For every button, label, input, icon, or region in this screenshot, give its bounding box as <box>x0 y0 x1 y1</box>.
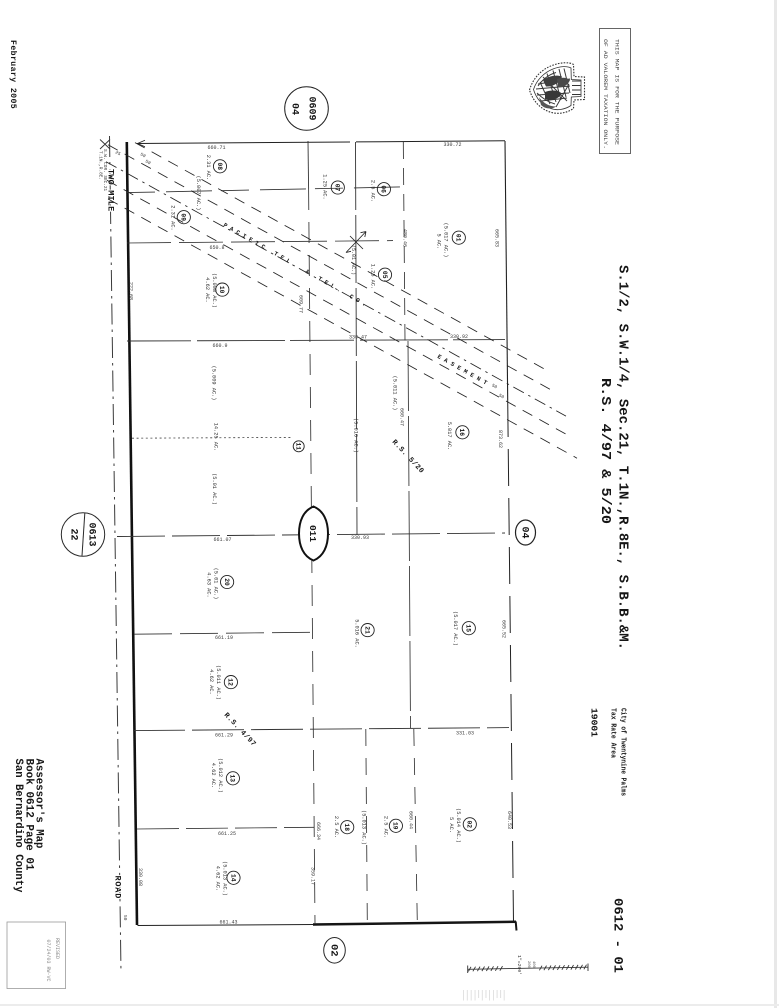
svg-text:02: 02 <box>328 944 340 957</box>
svg-text:14.25 AC.: 14.25 AC. <box>213 423 219 452</box>
svg-text:Tax Rate Area: Tax Rate Area <box>609 708 617 759</box>
svg-text:330.93: 330.93 <box>351 535 369 541</box>
svg-text:(5.01 AC.): (5.01 AC.) <box>213 568 219 600</box>
svg-text:5.017 AC.: 5.017 AC. <box>446 422 452 451</box>
svg-text:San Bernardino County: San Bernardino County <box>12 759 24 893</box>
svg-text:50: 50 <box>122 915 128 921</box>
svg-text:5.016 AC.: 5.016 AC. <box>354 619 360 648</box>
svg-text:(5.01 AC.): (5.01 AC.) <box>211 473 217 505</box>
svg-text:2.5 AC.: 2.5 AC. <box>369 180 375 202</box>
svg-text:1"=200': 1"=200' <box>516 955 522 975</box>
svg-text:011: 011 <box>307 525 318 542</box>
svg-text:08: 08 <box>216 163 223 171</box>
svg-text:666.34: 666.34 <box>315 822 321 840</box>
svg-text:(5.017 AC.): (5.017 AC.) <box>443 223 449 258</box>
svg-text:21: 21 <box>363 626 370 634</box>
svg-text:(5.008 AC.): (5.008 AC.) <box>211 273 217 308</box>
svg-text:February 2005: February 2005 <box>8 40 18 109</box>
svg-text:(5.014 AC.): (5.014 AC.) <box>455 808 461 843</box>
svg-text:13: 13 <box>229 775 236 783</box>
svg-text:5 AC.: 5 AC. <box>448 817 454 833</box>
svg-text:661.19: 661.19 <box>215 635 233 641</box>
svg-text:R.S. 4/97 & 5/20: R.S. 4/97 & 5/20 <box>597 378 613 524</box>
svg-text:07/24/03 RW-VC: 07/24/03 RW-VC <box>45 940 51 982</box>
svg-text:19: 19 <box>392 822 399 830</box>
svg-text:09: 09 <box>180 213 187 221</box>
svg-text:OF AD VALOREM TAXATION ONLY.: OF AD VALOREM TAXATION ONLY. <box>602 39 609 149</box>
svg-text:359.17: 359.17 <box>310 867 316 885</box>
svg-text:16: 16 <box>458 429 465 437</box>
svg-text:0613: 0613 <box>86 522 97 546</box>
svg-text:650.8: 650.8 <box>209 245 224 251</box>
svg-text:2.5 AC.: 2.5 AC. <box>333 816 339 838</box>
svg-text:330.72: 330.72 <box>443 142 461 148</box>
svg-text:330.47: 330.47 <box>349 335 367 341</box>
svg-text:4.63 AC.: 4.63 AC. <box>206 572 212 597</box>
svg-text:660.9: 660.9 <box>212 343 227 349</box>
svg-text:ROAD: ROAD <box>113 876 123 900</box>
svg-text:City of Twentynine Palms: City of Twentynine Palms <box>619 708 627 796</box>
svg-text:640.53: 640.53 <box>506 811 512 829</box>
svg-text:0609: 0609 <box>306 96 317 120</box>
svg-text:12: 12 <box>227 678 234 686</box>
svg-text:(5.011 AC.): (5.011 AC.) <box>215 665 221 700</box>
svg-text:2.31 AC.: 2.31 AC. <box>170 205 176 230</box>
svg-text:22: 22 <box>68 528 79 540</box>
svg-text:11: 11 <box>295 443 302 451</box>
svg-text:14: 14 <box>229 874 236 882</box>
svg-text:873.62: 873.62 <box>497 430 503 448</box>
svg-text:665.83: 665.83 <box>494 229 500 247</box>
svg-text:5 AC.: 5 AC. <box>436 233 442 249</box>
svg-text:04: 04 <box>289 103 300 115</box>
svg-text:S.1/2, S.W.1/4, Sec.21, T.1N.,: S.1/2, S.W.1/4, Sec.21, T.1N.,R.8E., S.B… <box>615 265 631 650</box>
svg-text:T.1N.,R.8E.: T.1N.,R.8E. <box>98 151 103 180</box>
svg-text:609.77: 609.77 <box>298 295 304 313</box>
svg-text:(5.013 AC.): (5.013 AC.) <box>361 810 367 845</box>
svg-text:200: 200 <box>526 961 530 969</box>
svg-text:07: 07 <box>334 184 341 192</box>
svg-text:02: 02 <box>466 821 473 829</box>
svg-text:20: 20 <box>223 578 230 586</box>
svg-text:||||l|l||ll|: ||||l|l||ll| <box>462 989 507 1001</box>
svg-text:2.5 AC.: 2.5 AC. <box>383 816 389 838</box>
svg-text:(5.012 AC.): (5.012 AC.) <box>217 758 223 793</box>
svg-text:(5.01 AC.): (5.01 AC.) <box>350 245 356 275</box>
svg-text:661.25: 661.25 <box>218 831 236 837</box>
svg-text:04: 04 <box>519 526 530 538</box>
svg-text:4.62 AC.: 4.62 AC. <box>208 669 214 694</box>
svg-text:661.29: 661.29 <box>215 733 233 739</box>
svg-text:331.03: 331.03 <box>456 731 474 737</box>
svg-text:1.25 AC.: 1.25 AC. <box>322 174 328 199</box>
svg-text:05: 05 <box>381 271 388 279</box>
svg-text:(5.016 AC.): (5.016 AC.) <box>353 418 359 453</box>
svg-text:19001: 19001 <box>589 708 599 738</box>
svg-text:661.07: 661.07 <box>213 537 231 543</box>
svg-text:222.68: 222.68 <box>128 282 134 300</box>
svg-text:(5.011 AC.): (5.011 AC.) <box>392 376 398 411</box>
svg-text:(5.017 AC.): (5.017 AC.) <box>452 611 458 646</box>
svg-text:1.25 AC.: 1.25 AC. <box>370 264 376 289</box>
svg-text:330.08: 330.08 <box>137 868 143 886</box>
svg-text:(5.013 AC.): (5.013 AC.) <box>222 861 228 896</box>
svg-text:660.44: 660.44 <box>408 811 414 829</box>
svg-text:REVISED: REVISED <box>54 938 60 959</box>
svg-text:01: 01 <box>455 234 462 242</box>
svg-text:661.43: 661.43 <box>219 920 237 926</box>
svg-text:15: 15 <box>465 624 472 632</box>
svg-text:0612 - 01: 0612 - 01 <box>611 898 625 973</box>
svg-text:4.62 AC.: 4.62 AC. <box>215 866 221 891</box>
svg-text:660.47: 660.47 <box>399 408 405 426</box>
svg-text:330.92: 330.92 <box>450 334 468 340</box>
svg-text:4.62 AC.: 4.62 AC. <box>210 763 216 788</box>
svg-text:480.46: 480.46 <box>402 229 408 247</box>
svg-text:4.62 AC.: 4.62 AC. <box>204 277 210 302</box>
svg-text:400: 400 <box>531 961 535 969</box>
svg-text:10: 10 <box>218 286 225 294</box>
svg-text:THIS MAP IS FOR THE PURPOSE: THIS MAP IS FOR THE PURPOSE <box>614 39 621 146</box>
svg-text:18: 18 <box>343 823 350 831</box>
svg-text:(5.009 AC.): (5.009 AC.) <box>211 366 217 401</box>
svg-text:665.52: 665.52 <box>501 620 507 638</box>
svg-text:2.31 AC.: 2.31 AC. <box>205 155 211 180</box>
svg-text:660.71: 660.71 <box>207 145 225 151</box>
svg-text:06: 06 <box>380 185 387 193</box>
svg-text:(5.007 AC.): (5.007 AC.) <box>195 176 201 211</box>
